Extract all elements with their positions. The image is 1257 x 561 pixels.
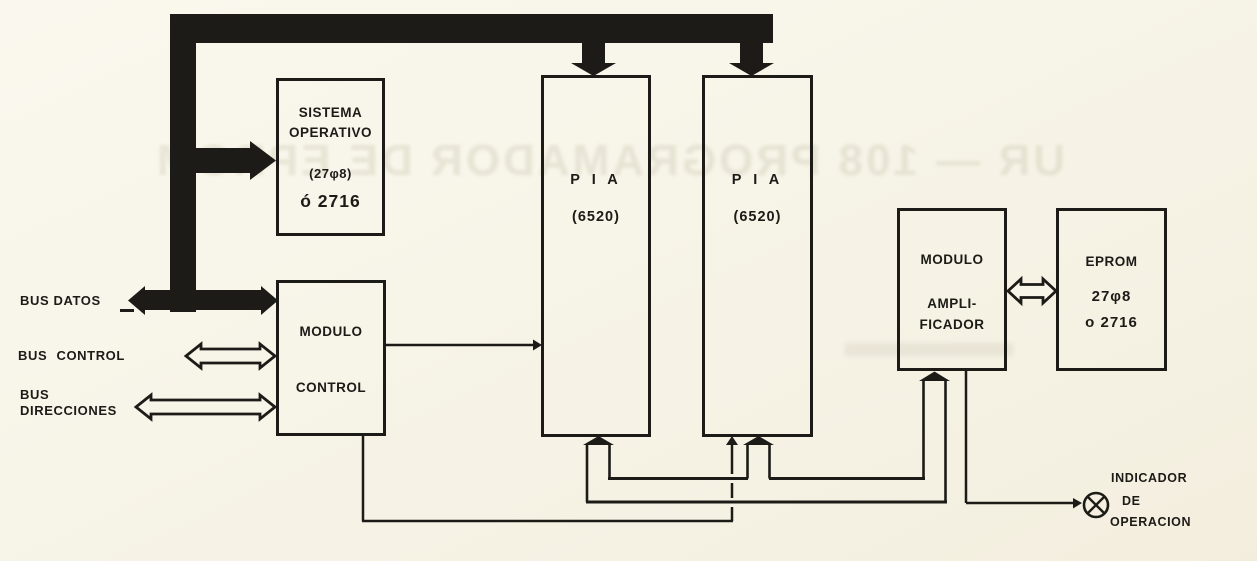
modulo-amplificador-line3: FICADOR [900, 317, 1004, 332]
data-bus-vertical-run [170, 14, 196, 312]
modulo-control-line1: MODULO [279, 324, 383, 339]
indicator-label-line1: INDICADOR [1111, 471, 1187, 485]
sistema-operativo-line2: OPERATIVO [279, 125, 382, 140]
bus-datos-arrow [128, 286, 278, 315]
bus-arrow-to-pia2 [729, 41, 774, 76]
hat-arrow-into-pia2 [743, 436, 774, 479]
sistema-operativo-chip: (27φ8) [279, 166, 382, 181]
pia1-chip: (6520) [544, 209, 648, 225]
control-to-pia1-line [386, 340, 542, 351]
bus-direcciones-arrow [136, 395, 275, 419]
modulo-control-line2: CONTROL [279, 380, 383, 395]
bus-control-label: BUS CONTROL [18, 348, 125, 364]
indicator-label-line2: DE [1122, 494, 1141, 508]
amplificador-eprom-arrow [1008, 279, 1056, 303]
modulo-control-box: MODULO CONTROL [276, 280, 386, 436]
pia2-box: P I A (6520) [702, 75, 813, 437]
bus-direcciones-label-line2: DIRECCIONES [20, 403, 117, 419]
bus-arrow-to-pia1 [571, 41, 616, 76]
modulo-amplificador-line1: MODULO [900, 252, 1004, 267]
eprom-line1: EPROM [1059, 254, 1164, 269]
pia2-chip: (6520) [705, 209, 810, 225]
pia1-box: P I A (6520) [541, 75, 651, 437]
indicator-label-line3: OPERACION [1110, 515, 1191, 529]
indicator-lamp-icon [1084, 493, 1108, 517]
bus-datos-label: BUS DATOS [20, 293, 101, 309]
bus-control-arrow [186, 344, 275, 368]
eprom-chip1: 27φ8 [1059, 288, 1164, 305]
sistema-operativo-chip-alt: ó 2716 [279, 191, 382, 212]
eprom-chip2: o 2716 [1059, 314, 1164, 331]
pia1-name: P I A [544, 172, 648, 188]
sistema-operativo-box: SISTEMA OPERATIVO (27φ8) ó 2716 [276, 78, 385, 236]
eprom-box: EPROM 27φ8 o 2716 [1056, 208, 1167, 371]
bus-arrow-to-sistema-operativo [194, 141, 276, 180]
hat-arrow-into-pia1 [583, 436, 614, 502]
hat-arrow-into-amplificador [919, 372, 950, 503]
modulo-amplificador-line2: AMPLI- [900, 296, 1004, 311]
modulo-amplificador-box: MODULO AMPLI- FICADOR [897, 208, 1007, 371]
sistema-operativo-line1: SISTEMA [279, 105, 382, 120]
underline-mark [120, 309, 134, 312]
bus-direcciones-label-line1: BUS [20, 387, 49, 403]
data-bus-top-run [170, 14, 773, 43]
amplificador-to-indicator-line [966, 371, 1082, 509]
pia2-name: P I A [705, 172, 810, 188]
block-diagram-page: UR — 108 PROGRAMADOR DE EPROM [0, 0, 1257, 561]
